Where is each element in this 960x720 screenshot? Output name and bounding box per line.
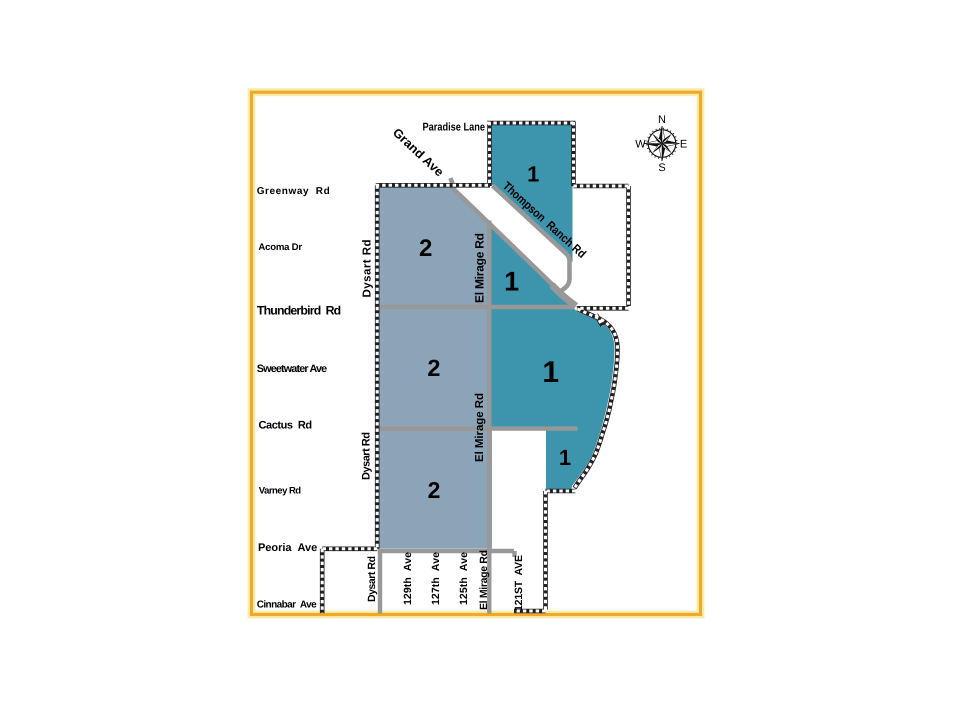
svg-text:129th Ave: 129th Ave: [402, 552, 414, 605]
svg-text:Greenway Rd: Greenway Rd: [257, 186, 330, 197]
svg-text:127th Ave: 127th Ave: [430, 552, 442, 605]
svg-text:El Mirage Rd: El Mirage Rd: [472, 233, 486, 303]
svg-text:Varney Rd: Varney Rd: [259, 486, 301, 497]
svg-text:125th Ave: 125th Ave: [458, 552, 470, 605]
svg-text:Paradise Lane: Paradise Lane: [423, 122, 486, 134]
svg-text:Cinnabar Ave: Cinnabar Ave: [257, 600, 317, 611]
svg-text:1: 1: [542, 356, 559, 389]
svg-text:1: 1: [559, 445, 571, 470]
svg-text:2: 2: [427, 355, 440, 381]
svg-text:E: E: [680, 138, 687, 150]
svg-text:1: 1: [527, 161, 539, 186]
svg-text:Acoma Dr: Acoma Dr: [258, 242, 302, 253]
svg-text:Dysart Rd: Dysart Rd: [366, 556, 378, 602]
svg-text:Dysart Rd: Dysart Rd: [362, 240, 374, 298]
svg-text:Cactus Rd: Cactus Rd: [259, 419, 313, 431]
svg-text:W: W: [635, 138, 646, 150]
svg-text:El Mirage Rd: El Mirage Rd: [474, 393, 486, 462]
svg-text:El Mirage Rd: El Mirage Rd: [478, 550, 490, 610]
svg-text:Thunderbird Rd: Thunderbird Rd: [257, 304, 341, 318]
svg-text:Sweetwater Ave: Sweetwater Ave: [257, 363, 327, 375]
svg-text:2: 2: [419, 235, 432, 262]
svg-text:121ST AVE: 121ST AVE: [513, 555, 525, 611]
svg-text:2: 2: [428, 477, 441, 503]
svg-text:1: 1: [504, 267, 519, 297]
svg-text:Dysart Rd: Dysart Rd: [360, 432, 372, 480]
svg-text:N: N: [658, 114, 666, 126]
svg-text:S: S: [658, 162, 665, 174]
svg-text:Peoria Ave: Peoria Ave: [258, 542, 317, 554]
